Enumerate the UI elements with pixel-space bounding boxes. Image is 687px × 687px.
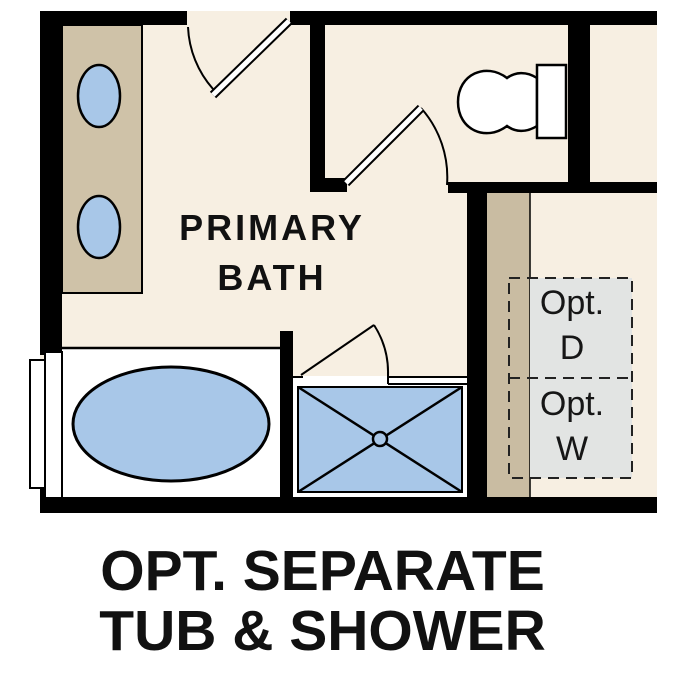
wall-water-closet-left — [310, 25, 325, 192]
optional-dryer-line1: Opt. — [512, 281, 632, 326]
room-label-line2: BATH — [142, 253, 402, 303]
wall-water-closet-right — [568, 25, 590, 182]
optional-washer-label: Opt. W — [512, 382, 632, 472]
wall-middle-horizontal — [448, 182, 657, 193]
toilet-tank — [537, 65, 566, 138]
plan-caption: OPT. SEPARATE TUB & SHOWER — [0, 541, 645, 661]
wall-left-upper — [40, 11, 62, 355]
wall-bottom — [40, 497, 657, 513]
window-inner-frame — [45, 352, 62, 498]
toilet-bowl — [458, 71, 537, 133]
bathtub — [73, 367, 269, 481]
wall-water-closet-left-return — [310, 178, 347, 192]
sink-basin-bottom — [78, 196, 120, 258]
optional-washer-line2: W — [512, 427, 632, 472]
optional-dryer-line2: D — [512, 326, 632, 371]
wall-top-right — [290, 11, 657, 25]
plan-caption-line1: OPT. SEPARATE — [0, 541, 645, 601]
wall-tub-shower-stub — [280, 331, 293, 497]
sink-basin-top — [78, 65, 120, 127]
room-label-line1: PRIMARY — [142, 203, 402, 253]
plan-caption-line2: TUB & SHOWER — [0, 601, 645, 661]
floor-plan-drawing: PRIMARY BATH Opt. D Opt. W OPT. SEPARATE… — [0, 0, 687, 687]
optional-dryer-label: Opt. D — [512, 281, 632, 371]
wall-top-left — [40, 11, 187, 25]
window-outer-frame — [30, 360, 45, 488]
optional-washer-line1: Opt. — [512, 382, 632, 427]
wall-laundry-left — [467, 193, 487, 497]
room-label: PRIMARY BATH — [142, 203, 402, 303]
shower-drain — [373, 432, 387, 446]
